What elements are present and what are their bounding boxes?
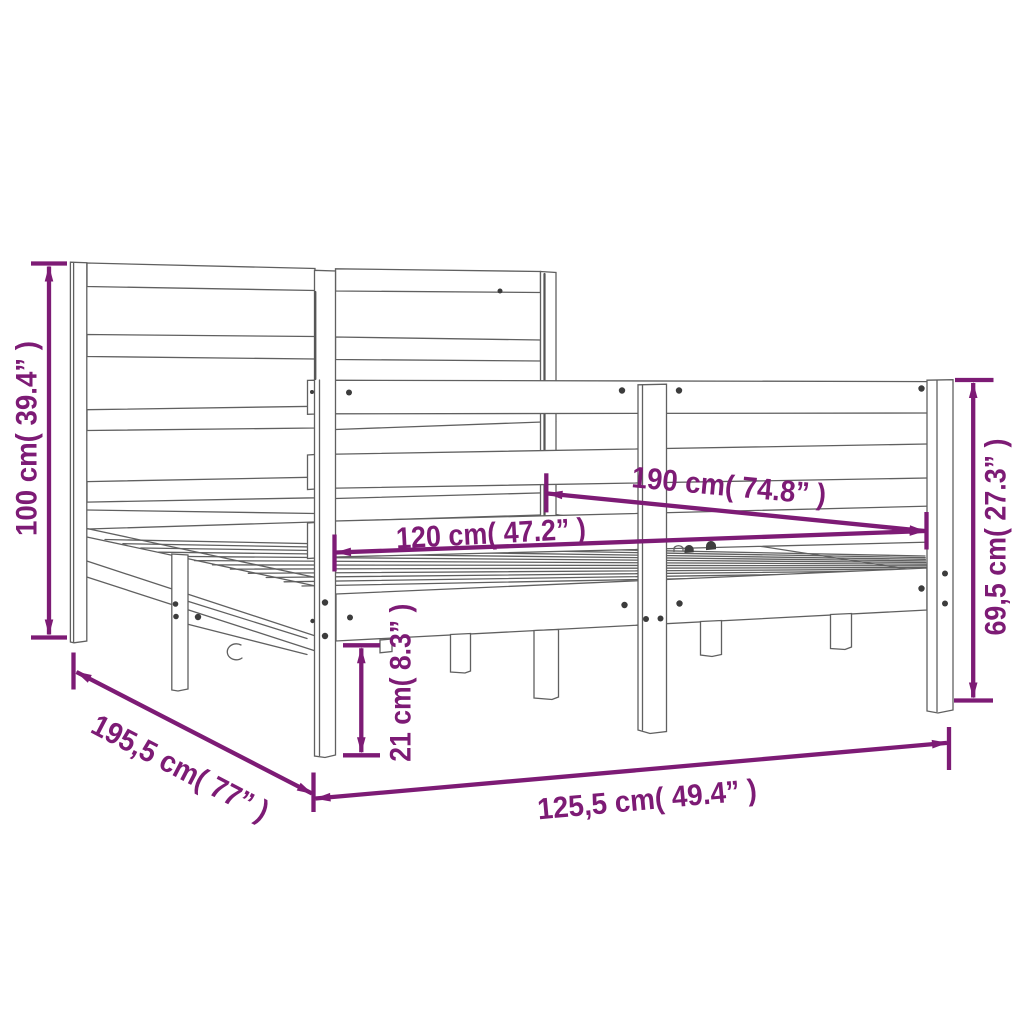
svg-text:100 cm( 39.4” ): 100 cm( 39.4” ) (10, 341, 43, 536)
svg-text:21 cm( 8.3” ): 21 cm( 8.3” ) (385, 604, 418, 762)
svg-text:69,5 cm( 27.3” ): 69,5 cm( 27.3” ) (980, 439, 1013, 636)
